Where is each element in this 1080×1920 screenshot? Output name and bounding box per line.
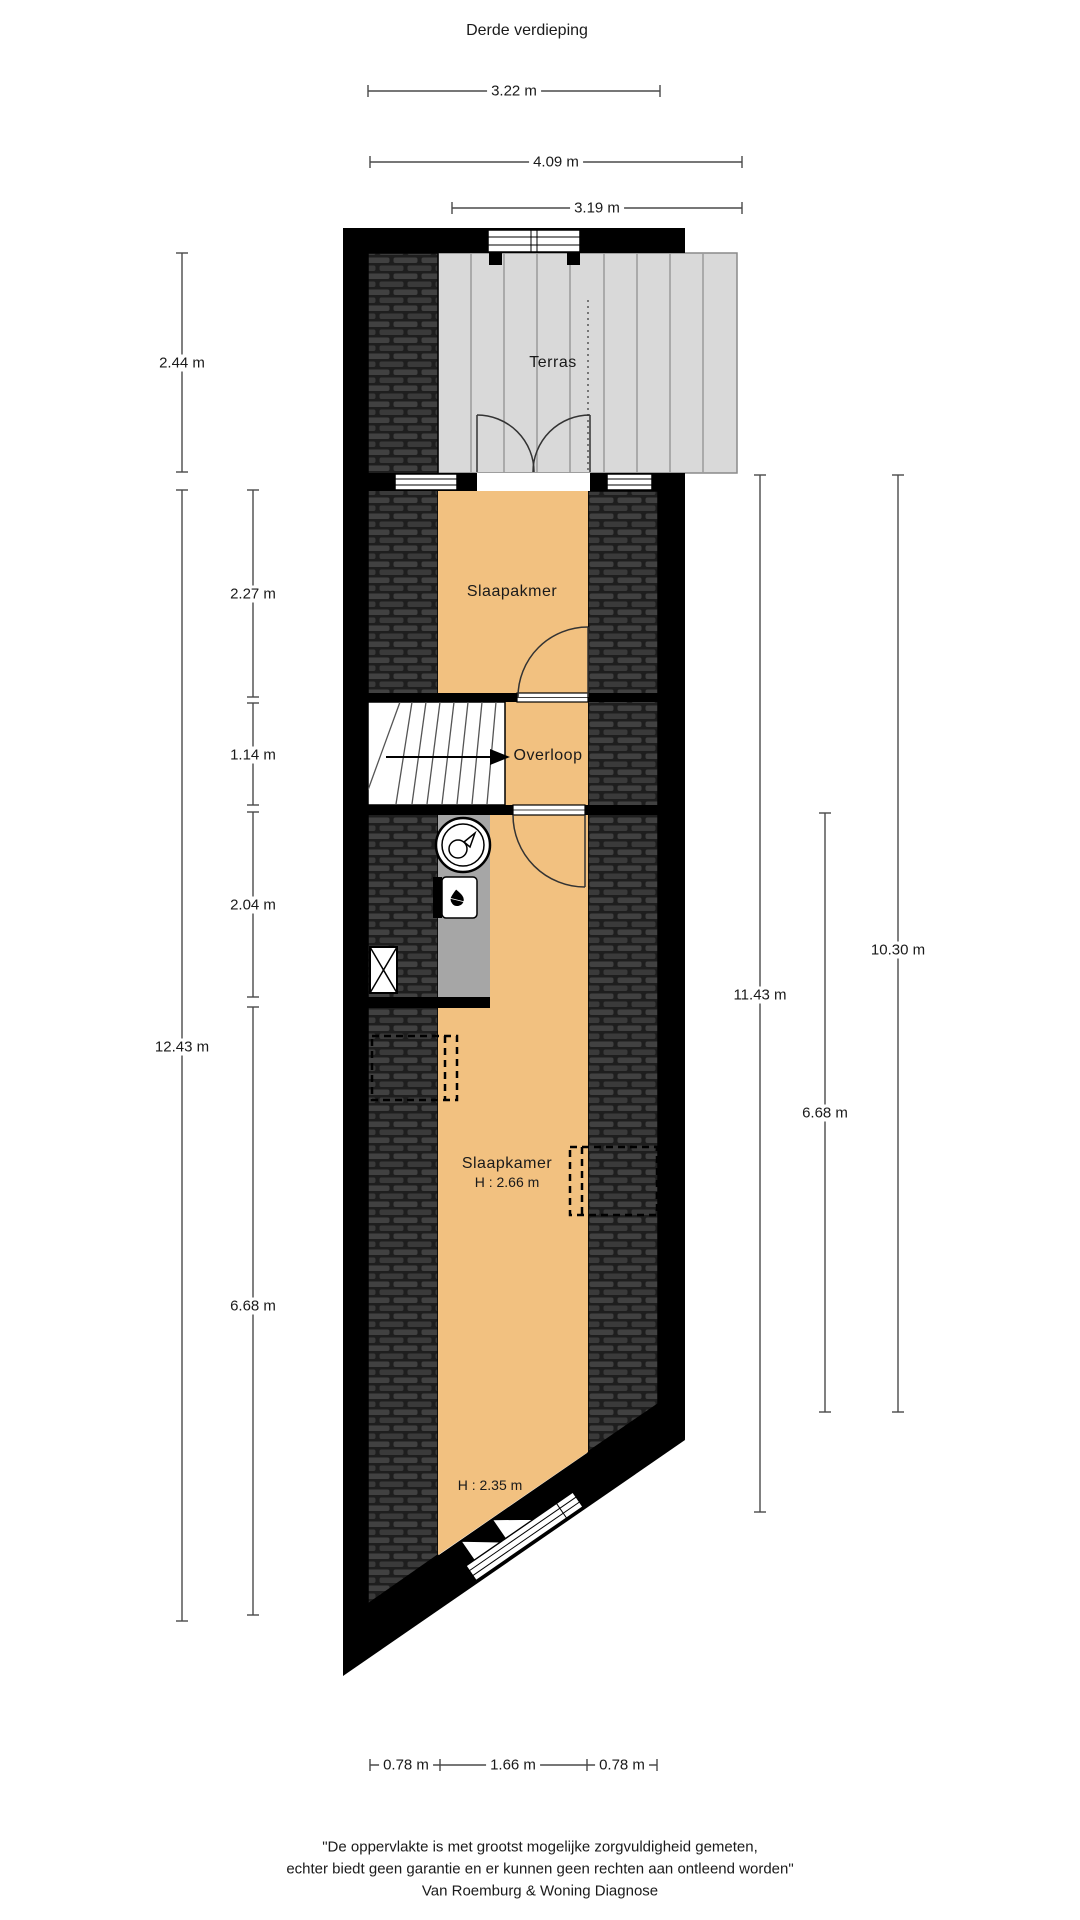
dim-right-outer: 10.30 m: [867, 942, 929, 959]
dim-right-total: 11.43 m: [729, 987, 790, 1004]
dim-overloop-depth: 1.14 m: [226, 747, 280, 764]
dim-top-room-width: 3.22 m: [487, 83, 541, 100]
dim-terras-depth: 2.44 m: [155, 355, 209, 372]
boiler-icon: [436, 818, 490, 872]
room-height-low: H : 2.35 m: [458, 1477, 523, 1493]
room-label-slaapkamer-bottom: Slaapkamer: [462, 1155, 552, 1173]
window-band-right: [607, 474, 652, 490]
wall-overloop-top: [343, 693, 685, 702]
dim-terras-width: 4.09 m: [529, 154, 583, 171]
page-title: Derde verdieping: [466, 22, 588, 40]
sill-slaapkamer-door: [517, 693, 588, 702]
disclaimer-line-3: Van Roemburg & Woning Diagnose: [422, 1883, 658, 1900]
room-height-main: H : 2.66 m: [475, 1174, 540, 1190]
terras-door-opening: [477, 473, 590, 491]
roof-hatch-left: [368, 253, 438, 1604]
wall-left: [343, 228, 368, 1676]
window-band-left: [395, 474, 457, 490]
dim-bottom-depth-right: 6.68 m: [798, 1105, 852, 1122]
room-label-overloop: Overloop: [514, 747, 583, 765]
wall-right: [658, 473, 685, 1440]
dim-terras-inner-width: 3.19 m: [570, 200, 624, 217]
dim-bottom-right: 0.78 m: [595, 1757, 649, 1774]
wall-closet-stub: [368, 997, 490, 1008]
stairs: [368, 702, 510, 805]
floorplan-page: Derde verdieping 3.22 m 4.09 m 3.19 m 2.…: [0, 0, 1080, 1920]
dim-bottom-center: 1.66 m: [486, 1757, 540, 1774]
chimney-x-icon: [370, 947, 397, 993]
roof-hatch-right: [588, 491, 658, 1452]
disclaimer-line-2: echter biedt geen garantie en er kunnen …: [286, 1861, 793, 1878]
dim-bottom-depth-left: 6.68 m: [226, 1298, 280, 1315]
heater-flame-icon: [433, 877, 477, 918]
dim-total-depth: 12.43 m: [151, 1039, 213, 1056]
disclaimer-line-1: "De oppervlakte is met grootst mogelijke…: [322, 1839, 758, 1856]
room-label-terras: Terras: [529, 354, 576, 372]
terras-deck: [438, 253, 737, 473]
floorplan-drawing: [0, 0, 1080, 1920]
dim-slaapkamer-depth: 2.27 m: [226, 586, 280, 603]
room-floors: [438, 491, 588, 1555]
room-label-slaapkamer-top: Slaapakmer: [467, 583, 557, 601]
dim-bottom-left: 0.78 m: [379, 1757, 433, 1774]
sill-overloop-door: [513, 805, 585, 815]
dim-closet-depth: 2.04 m: [226, 897, 280, 914]
